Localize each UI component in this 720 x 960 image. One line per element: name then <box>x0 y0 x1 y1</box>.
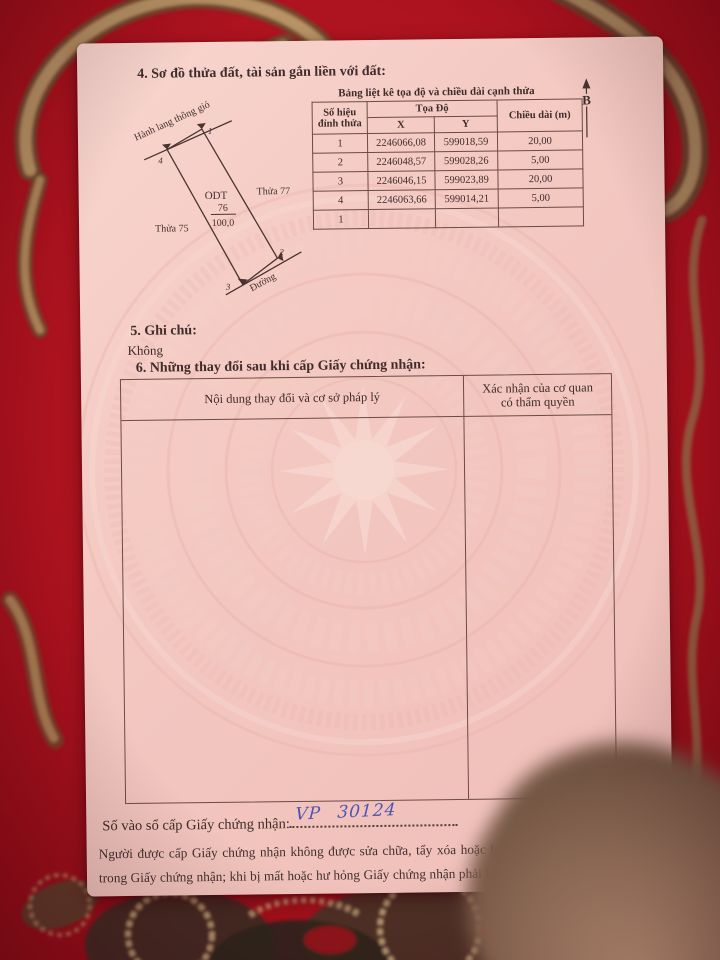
x-cell <box>368 209 435 229</box>
north-label: B <box>582 92 591 107</box>
table-row: 1 <box>313 207 583 229</box>
registry-line: Số vào sổ cấp Giấy chứng nhận:VP 30124 <box>102 811 458 835</box>
corner-4-label: 4 <box>158 156 163 166</box>
changes-col1-header: Nội dung thay đổi và cơ sở pháp lý <box>121 376 464 420</box>
vertex-header: Số hiệu đỉnh thửa <box>312 102 367 135</box>
vertex-cell: 1 <box>313 210 368 230</box>
changes-table: Nội dung thay đổi và cơ sở pháp lý Xác n… <box>120 373 617 804</box>
corner-1-label: 1 <box>208 126 213 136</box>
x-header: X <box>367 117 434 134</box>
section6-title: 6. Những thay đổi sau khi cấp Giấy chứng… <box>136 357 426 377</box>
corridor-label: Hành lang thông gió <box>133 99 212 143</box>
plot-left-label: Thửa 75 <box>155 223 189 234</box>
coordinate-table-title: Bảng liệt kê tọa độ và chiều dài cạnh th… <box>305 85 567 100</box>
x-cell: 2246046,15 <box>368 171 435 191</box>
section4-title: 4. Sơ đồ thửa đất, tài sản gắn liền với … <box>137 64 386 83</box>
length-cell: 20,00 <box>498 169 583 189</box>
corner-3-label: 3 <box>225 282 231 292</box>
coords-header: Tọa Độ <box>367 100 497 118</box>
x-cell: 2246048,57 <box>368 152 435 172</box>
changes-table-divider <box>463 416 469 799</box>
registry-handwriting: VP 30124 <box>295 800 397 825</box>
changes-col2-line2: có thẩm quyền <box>501 395 575 410</box>
land-use-code: ODT <box>205 190 228 202</box>
length-cell: 5,00 <box>498 150 583 170</box>
y-cell: 599023,89 <box>435 170 498 190</box>
section5-content: Không <box>127 343 163 359</box>
x-cell: 2246063,66 <box>368 190 435 210</box>
x-cell: 2246066,08 <box>367 133 434 153</box>
changes-col2-header: Xác nhận của cơ quan có thẩm quyền <box>464 374 611 416</box>
length-cell: 5,00 <box>498 188 583 208</box>
plot-area: 100,0 <box>212 218 235 229</box>
y-cell: 599014,21 <box>435 189 498 209</box>
y-header: Y <box>434 116 497 133</box>
vertex-cell: 4 <box>313 191 368 211</box>
length-header: Chiều dài (m) <box>497 99 582 132</box>
changes-table-header: Nội dung thay đổi và cơ sở pháp lý Xác n… <box>121 374 611 421</box>
coordinate-table: Số hiệu đỉnh thửa Tọa Độ Chiều dài (m) X… <box>312 98 585 229</box>
photo-scene: 4. Sơ đồ thửa đất, tài sản gắn liền với … <box>0 0 720 960</box>
vertex-cell: 1 <box>312 134 367 154</box>
length-cell: 20,00 <box>497 131 582 151</box>
y-cell <box>435 208 498 228</box>
dotted-leader: VP 30124 <box>290 811 458 828</box>
plot-right-label: Thửa 77 <box>257 186 291 197</box>
changes-col2-line1: Xác nhận của cơ quan <box>482 380 593 396</box>
vertex-cell: 3 <box>313 172 368 192</box>
corner-2-label: 2 <box>279 247 284 257</box>
section5-title: 5. Ghi chú: <box>130 323 197 340</box>
length-cell <box>498 207 583 227</box>
y-cell: 599018,59 <box>434 132 497 152</box>
y-cell: 599028,26 <box>435 151 498 171</box>
vertex-cell: 2 <box>313 153 368 173</box>
road-label: Đường <box>248 271 278 294</box>
registry-label: Số vào sổ cấp Giấy chứng nhận: <box>102 816 290 834</box>
plot-number: 76 <box>218 203 228 214</box>
plot-diagram: Hành lang thông gió 1 4 ODT 76 100,0 Thử… <box>117 91 306 311</box>
